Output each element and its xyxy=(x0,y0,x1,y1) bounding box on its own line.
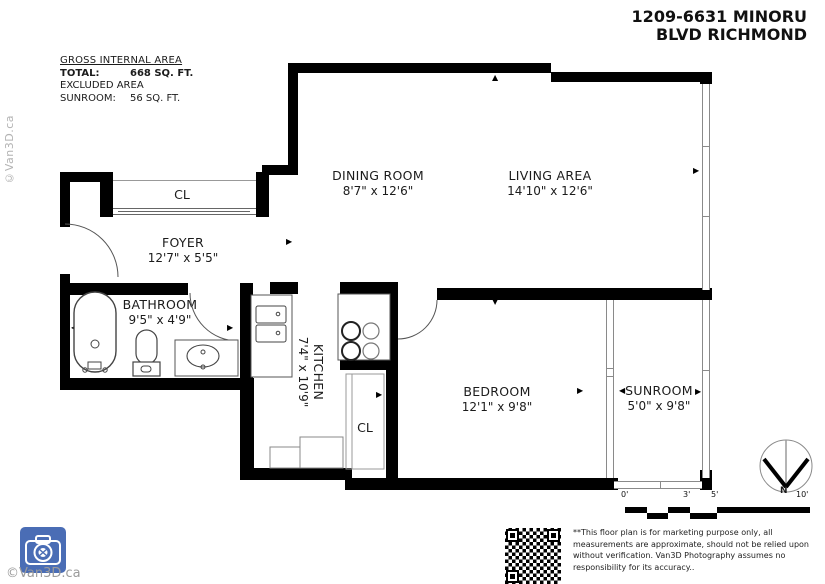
wall-top-left xyxy=(288,63,551,73)
entry-door-arc xyxy=(65,224,118,277)
wall-bathroom-bottom xyxy=(60,378,252,390)
floor-plan-page: { "title": {"line1": "1209-6631 MINORU",… xyxy=(0,0,825,584)
scale-bar-segment xyxy=(647,513,668,519)
compass-needle-right xyxy=(786,459,808,487)
disclaimer-text: **This floor plan is for marketing purpo… xyxy=(573,527,813,573)
bathroom-sink-faucet xyxy=(201,350,205,354)
measure-arrow-icon: ▶ xyxy=(286,238,292,246)
bathroom-sink-drain xyxy=(201,365,205,369)
sunroom-area-value: 56 SQ. FT. xyxy=(130,93,180,104)
measure-arrow-icon: ▶ xyxy=(693,167,699,175)
bedroom-label: BEDROOM 12'1" x 9'8" xyxy=(417,384,577,415)
wall-sunroom-top xyxy=(606,288,712,300)
scale-label-0: 0' xyxy=(621,490,628,499)
wall-kitchen-bedroom xyxy=(386,288,398,490)
plan-title: 1209-6631 MINORU BLVD RICHMOND xyxy=(632,8,807,45)
wall-closet-post-right xyxy=(256,172,269,217)
measure-arrow-icon: ▼ xyxy=(492,298,498,306)
bedroom-door-arc xyxy=(398,300,437,339)
wall-top-right xyxy=(551,72,712,82)
measure-arrow-icon: ▶ xyxy=(376,391,382,399)
kitchen-cabinet-2 xyxy=(270,447,300,468)
kitchen-cabinet-1 xyxy=(300,437,343,468)
window-sunroom-bottom xyxy=(614,481,702,489)
measure-arrow-icon: ◀ xyxy=(255,324,261,332)
wall-corner-cap-tr xyxy=(700,72,712,84)
excluded-label: EXCLUDED AREA xyxy=(60,80,193,93)
scale-label-5: 5' xyxy=(711,490,718,499)
foyer-closet-label: CL xyxy=(167,187,197,202)
area-summary: GROSS INTERNAL AREA TOTAL:668 SQ. FT. EX… xyxy=(60,55,193,105)
bathroom-sink xyxy=(187,345,219,367)
scale-label-3: 3' xyxy=(683,490,690,499)
closet-slider-line-3 xyxy=(113,214,256,215)
bathtub-knob-right xyxy=(103,368,107,372)
sunroom-area-label: SUNROOM: xyxy=(60,93,130,106)
qr-code xyxy=(505,528,561,584)
compass-north-label: N xyxy=(780,486,788,496)
scale-bar-segment xyxy=(625,507,647,513)
wall-kitchen-bottom xyxy=(240,468,352,480)
measure-arrow-icon: ▼ xyxy=(145,367,151,375)
window-living-right xyxy=(702,84,710,290)
side-watermark: ©Van3D.ca xyxy=(3,115,16,185)
foyer-label: FOYER 12'7" x 5'5" xyxy=(113,235,253,266)
measure-arrow-icon: ▶ xyxy=(695,388,701,396)
plan-title-line1: 1209-6631 MINORU xyxy=(632,8,807,26)
bathroom-label: BATHROOM 9'5" x 4'9" xyxy=(95,297,225,328)
plan-title-line2: BLVD RICHMOND xyxy=(632,26,807,44)
scale-label-10: 10' xyxy=(796,490,808,499)
bathroom-vanity xyxy=(175,340,238,376)
measure-arrow-icon: ▶ xyxy=(577,387,583,395)
measure-arrow-icon: ▲ xyxy=(143,285,149,293)
measure-arrow-icon: ▶ xyxy=(227,324,233,332)
scale-bar-segment xyxy=(668,507,690,513)
wall-dining-left xyxy=(288,63,298,175)
bathtub-faucet xyxy=(88,362,101,369)
compass-needle-left xyxy=(764,459,786,487)
wall-bedroom-top xyxy=(437,288,612,300)
total-label: TOTAL: xyxy=(60,68,130,81)
bathtub-drain xyxy=(91,340,99,348)
closet-slider-line-2 xyxy=(118,211,250,212)
wall-left-upper xyxy=(60,172,70,227)
bathtub-knob-left xyxy=(83,368,87,372)
measure-arrow-icon: ▲ xyxy=(291,285,297,293)
dining-room-label: DINING ROOM 8'7" x 12'6" xyxy=(298,168,458,199)
wall-main-bottom xyxy=(345,478,612,490)
kitchen-closet-label: CL xyxy=(350,420,380,435)
measure-arrow-icon: ▶ xyxy=(374,325,380,333)
measure-arrow-icon: ▲ xyxy=(492,74,498,82)
measure-arrow-icon: ◀ xyxy=(619,387,625,395)
kitchen-label: KITCHEN 7'4" x 10'9" xyxy=(250,312,370,432)
closet-back-line xyxy=(113,180,256,181)
measure-arrow-icon: ◀ xyxy=(71,324,77,332)
scale-bar-segment xyxy=(717,507,810,513)
closet-slider-line-1 xyxy=(113,208,256,209)
compass-circle xyxy=(760,440,812,492)
scale-bar-segment xyxy=(690,513,717,519)
area-heading: GROSS INTERNAL AREA xyxy=(60,55,193,68)
copyright-text: ©Van3D.ca xyxy=(6,566,81,581)
toilet-bowl xyxy=(136,330,157,364)
wall-bathroom-top xyxy=(60,283,188,295)
total-value: 668 SQ. FT. xyxy=(130,68,193,79)
living-area-label: LIVING AREA 14'10" x 12'6" xyxy=(470,168,630,199)
